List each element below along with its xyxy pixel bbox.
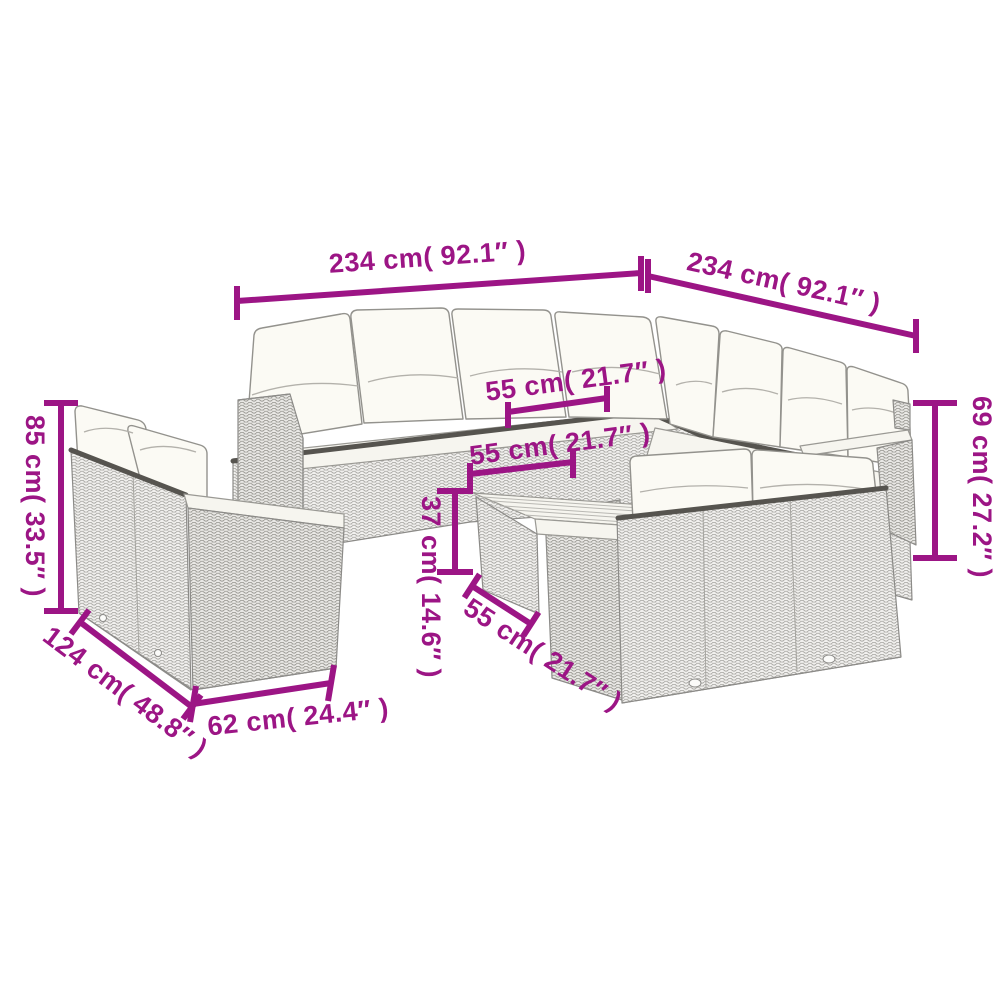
dim-label: 234 cm( 92.1″ ) <box>328 235 527 279</box>
screw-mark <box>100 615 107 622</box>
dim-back-height-right: 69 cm( 27.2″ ) <box>913 396 997 578</box>
right-sofa <box>617 449 901 703</box>
product-dimension-diagram: 234 cm( 92.1″ ) 234 cm( 92.1″ ) 55 cm( 2… <box>0 0 1000 1000</box>
back-cushion <box>351 308 463 423</box>
dim-back-height-left: 85 cm( 33.5″ ) <box>20 403 78 611</box>
corner-sofa-right-post <box>893 400 910 430</box>
dim-sofa-left-width: 234 cm( 92.1″ ) <box>237 235 641 320</box>
screw-mark <box>155 650 162 657</box>
sofa-set-illustration: 234 cm( 92.1″ ) 234 cm( 92.1″ ) 55 cm( 2… <box>0 0 1000 1000</box>
screw-mark <box>689 679 701 687</box>
dim-label: 69 cm( 27.2″ ) <box>967 396 997 578</box>
right-sofa-back-panel <box>617 487 901 703</box>
dim-label: 37 cm( 14.6″ ) <box>416 496 446 678</box>
dim-label: 85 cm( 33.5″ ) <box>20 415 50 597</box>
screw-mark <box>823 655 835 663</box>
left-sofa-arm-panel <box>188 508 344 690</box>
dim-line <box>913 403 957 558</box>
